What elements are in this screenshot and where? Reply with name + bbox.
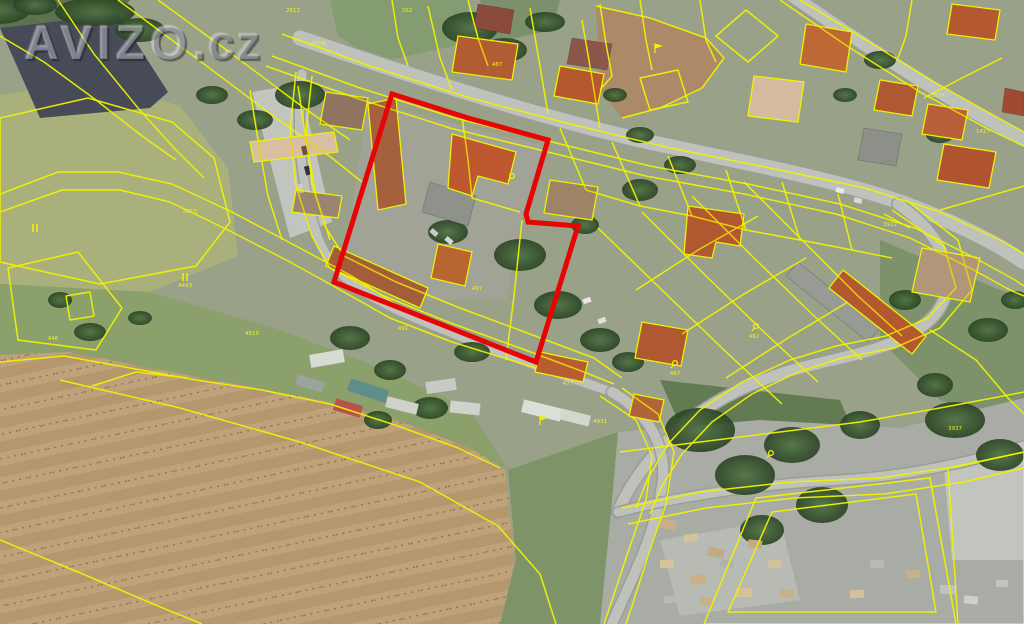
parcel-number-label: 1427 [976,129,990,135]
parcel-number-label: 467 [670,371,681,377]
ground-object [906,569,921,578]
tree [840,411,880,439]
parcel-number-label: 487 [492,62,503,68]
ground-object [768,559,783,568]
tree [48,292,72,308]
tree [196,86,228,104]
parcel-number-label: 4016 [311,41,325,47]
map-viewport[interactable]: 2612262401648740104493451544649149739223… [0,0,1024,624]
ground-object [964,595,979,604]
building-house-tr-5 [858,128,902,166]
parcel-number-label: 4931 [593,419,607,425]
ground-object [996,580,1008,587]
parcel-number-label: 2612 [286,8,300,14]
parcel-number-label: 4515 [245,331,259,337]
tree [976,439,1024,471]
ground-object [664,595,677,603]
tree [74,323,106,341]
tree [968,318,1008,342]
parcel-number-label: 4493 [178,283,192,289]
tree [330,326,370,350]
parcel-number-label: 462 [749,334,760,340]
parcel-number-label: 2577 [931,93,945,99]
ground-object [870,560,885,569]
ground-object [940,585,956,594]
cadastral-building-outline [874,80,918,116]
cadastral-building-outline [635,322,688,366]
tree [603,88,627,102]
ground-object [850,590,865,599]
parcel-number-label: 477 [563,381,574,387]
tree [580,328,620,352]
parcel-number-label: 446 [48,336,59,342]
tree [925,402,985,438]
cadastral-building-outline [452,36,518,80]
cadastral-building-outline [320,92,368,130]
ground-object [780,590,795,599]
building-house-right-sliver [1002,88,1024,116]
parcel-number-label: 4010 [183,209,197,215]
cadastral-building-outline [544,180,598,220]
cadastral-building-outline [922,104,968,140]
parcel-number-label: 497 [472,286,483,292]
parcel-number-label: 491 [398,326,409,332]
tree [833,88,857,102]
cadastral-building-outline [947,4,1000,40]
cadastral-building-outline [800,24,852,72]
cadastral-building-outline [912,248,980,302]
tree [374,360,406,380]
parcel-number-label: 262 [402,8,413,14]
cadastral-building-outline [937,144,996,188]
parcel-number-label: 3937 [948,426,962,432]
tree [128,311,152,325]
map-canvas: 2612262401648740104493451544649149739223… [0,0,1024,624]
cadastral-building-outline [431,244,472,286]
parcel-number-label: 3922 [883,222,897,228]
ground-object [660,560,674,568]
tree [917,373,953,397]
tree [622,179,658,201]
cadastral-building-outline [748,76,804,122]
